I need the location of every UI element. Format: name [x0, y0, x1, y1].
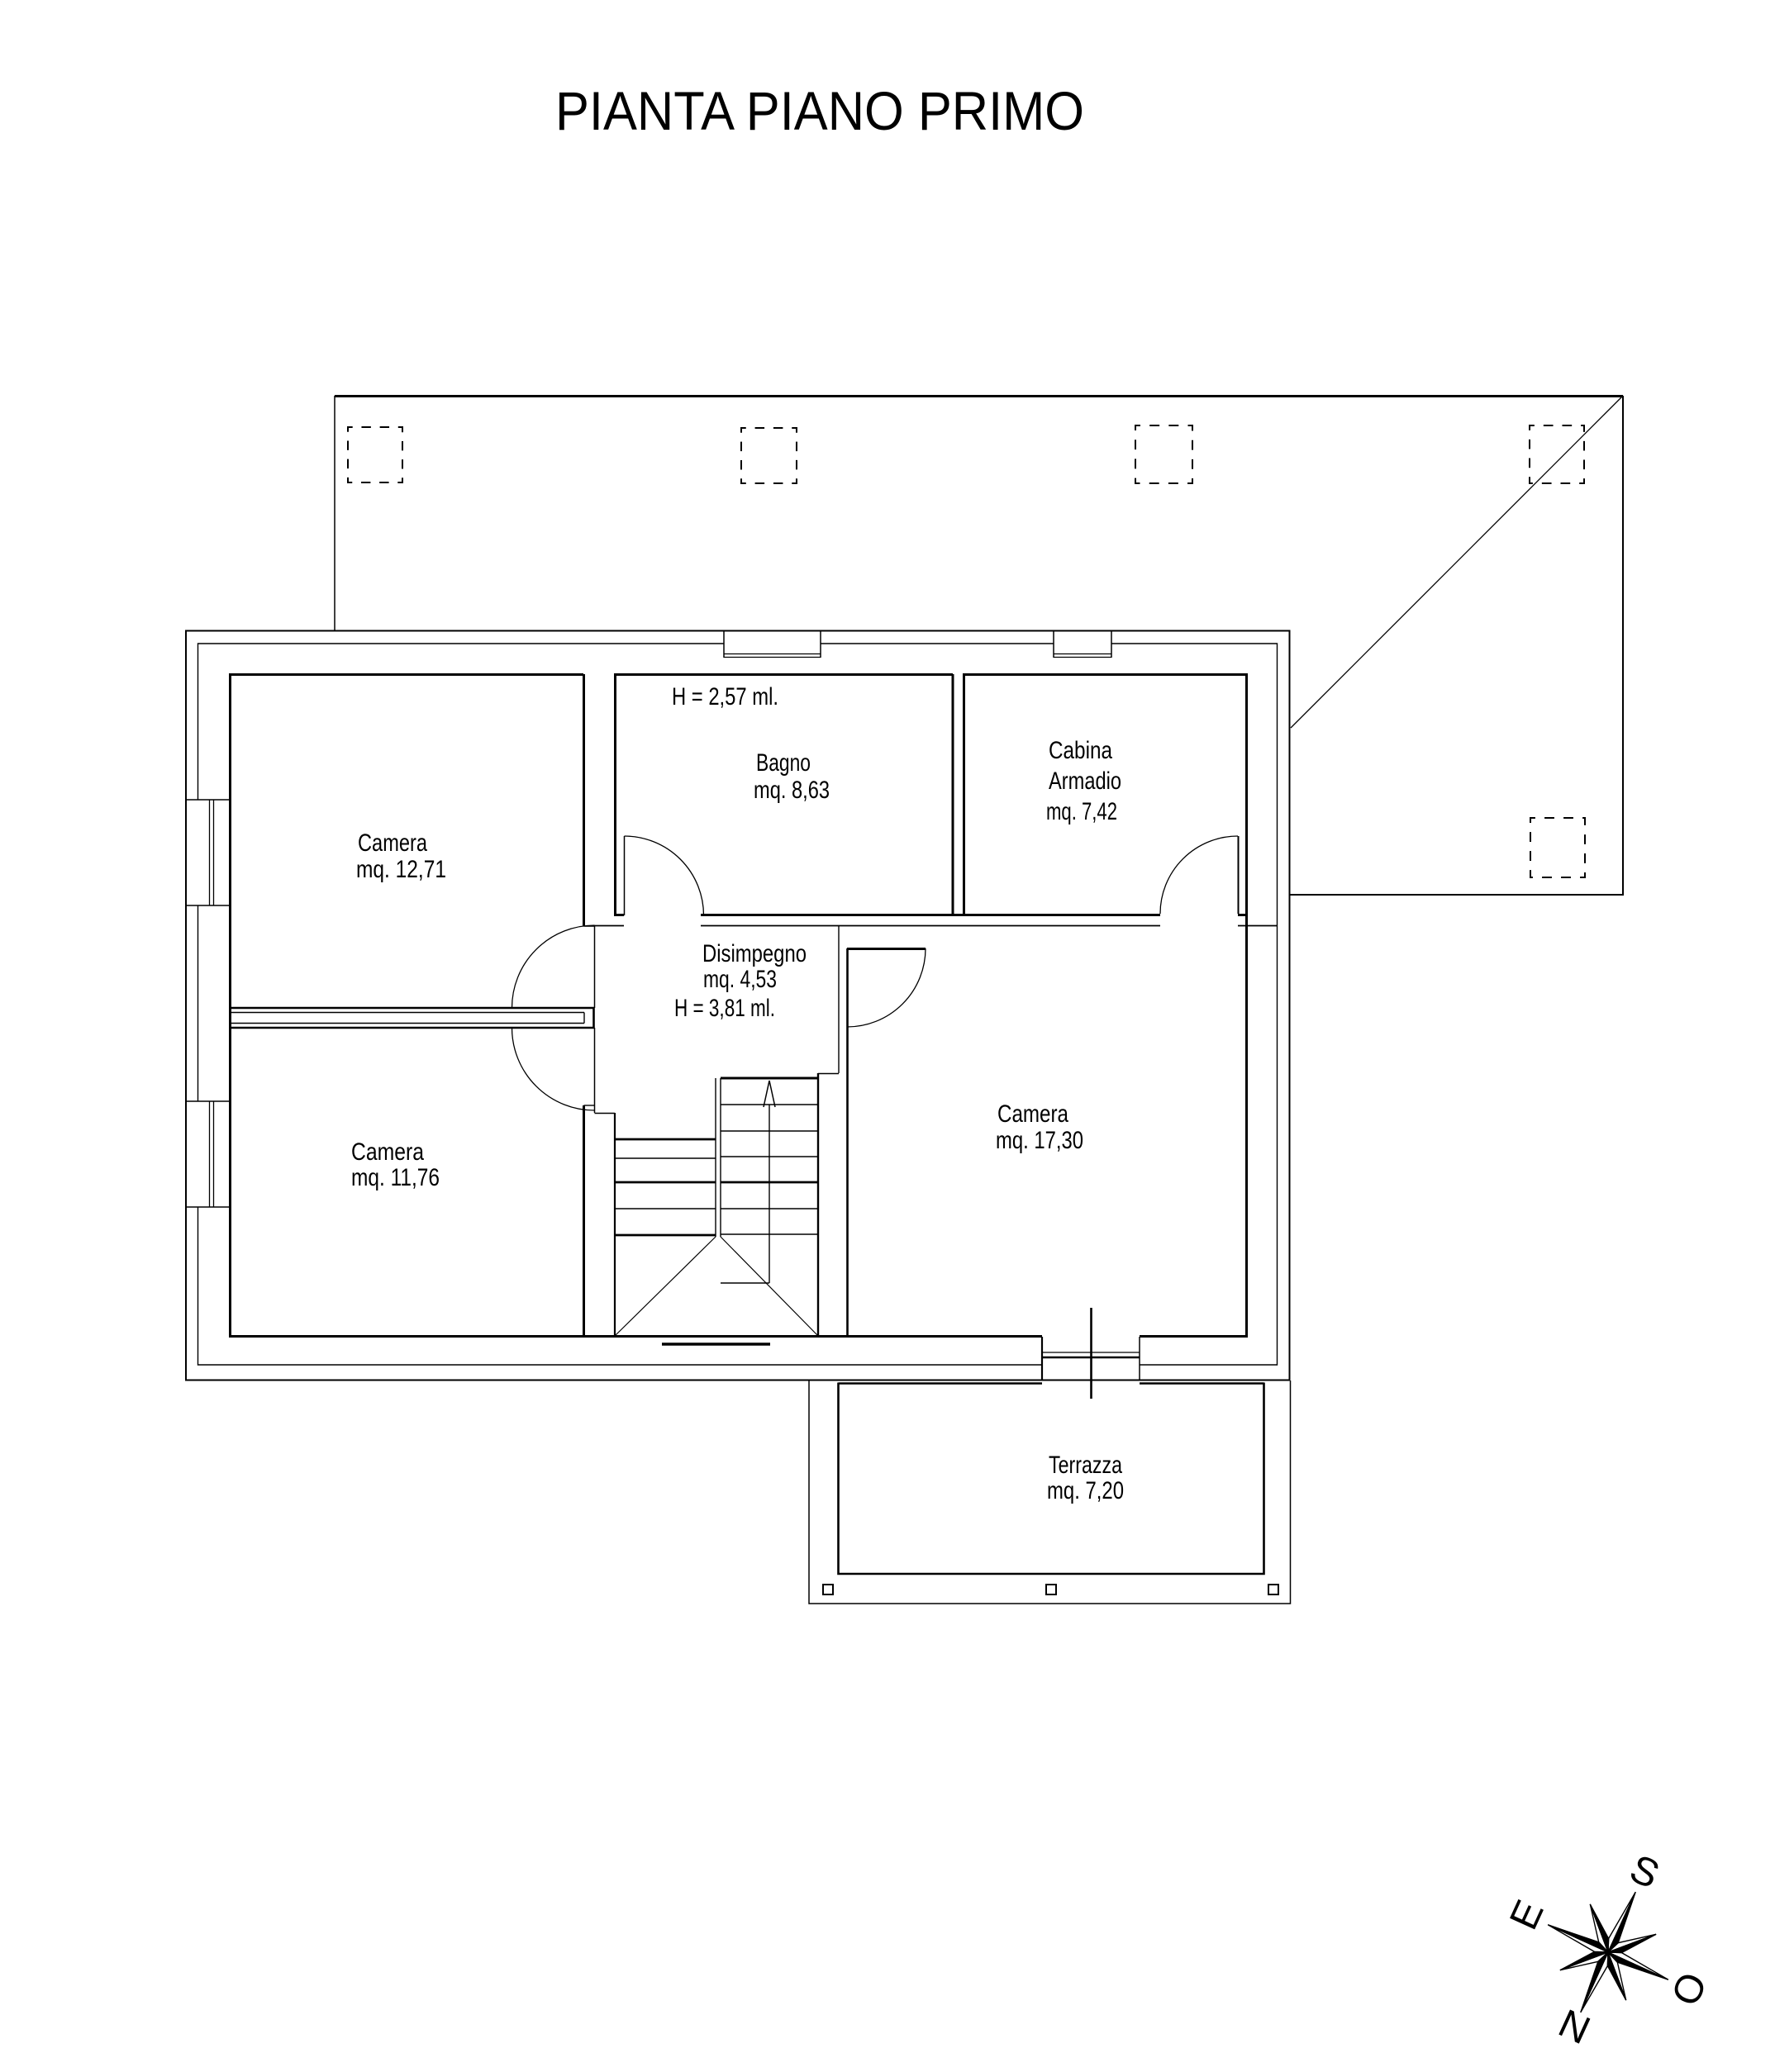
svg-text:mq. 12,71: mq. 12,71 [356, 856, 446, 883]
svg-text:Bagno: Bagno [756, 749, 811, 777]
svg-text:N: N [1552, 2002, 1597, 2054]
svg-text:mq. 17,30: mq. 17,30 [996, 1127, 1083, 1154]
svg-text:mq. 11,76: mq. 11,76 [351, 1164, 440, 1191]
svg-text:Camera: Camera [358, 829, 427, 857]
svg-text:Armadio: Armadio [1049, 767, 1121, 795]
svg-text:S: S [1623, 1846, 1665, 1898]
svg-text:mq. 8,63: mq. 8,63 [754, 777, 830, 804]
svg-text:Camera: Camera [351, 1138, 424, 1166]
svg-text:mq. 4,53: mq. 4,53 [703, 966, 777, 993]
svg-text:PIANTA PIANO PRIMO: PIANTA PIANO PRIMO [555, 80, 1084, 141]
svg-text:O: O [1662, 1965, 1715, 2012]
svg-text:Cabina: Cabina [1049, 737, 1112, 764]
svg-text:H = 3,81 ml.: H = 3,81 ml. [674, 995, 775, 1022]
svg-text:mq. 7,20: mq. 7,20 [1047, 1477, 1124, 1504]
svg-text:mq. 7,42: mq. 7,42 [1046, 798, 1117, 825]
svg-text:H = 2,57 ml.: H = 2,57 ml. [672, 683, 778, 710]
svg-text:E: E [1501, 1894, 1553, 1936]
svg-text:Camera: Camera [997, 1100, 1068, 1128]
svg-text:Terrazza: Terrazza [1049, 1452, 1122, 1479]
svg-text:Disimpegno: Disimpegno [702, 940, 807, 967]
